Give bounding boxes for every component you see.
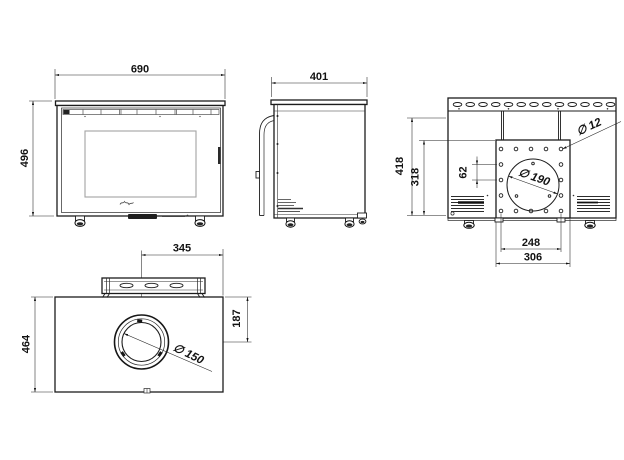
plan-bottom-clip — [144, 389, 150, 394]
dimension-side-depth: 401 — [272, 71, 368, 97]
dimension-front-width: 690 — [55, 64, 225, 100]
plan-body — [55, 278, 223, 393]
plan-view: 345 464 187 — [21, 243, 252, 394]
front-view: 690 496 — [19, 64, 225, 227]
side-foot-middle — [345, 218, 354, 227]
plate-tab-left — [495, 218, 503, 222]
side-view: 401 — [256, 71, 367, 227]
side-foot-front — [286, 218, 295, 227]
flue-offset-y-label: 187 — [231, 309, 243, 327]
side-depth-label: 401 — [310, 71, 328, 83]
rear-plate-height-label: 318 — [410, 168, 422, 186]
dimension-hole-span: 248 — [501, 214, 561, 252]
side-top-plate — [271, 100, 367, 105]
rear-body — [448, 98, 616, 228]
front-ash-lip — [128, 214, 157, 219]
vent-latch-block — [64, 110, 70, 114]
dimension-plan-depth: 464 — [21, 297, 54, 392]
side-body — [256, 100, 367, 227]
fireplace-dimension-drawing: 690 496 — [0, 0, 624, 460]
dimension-rear-overall-height: 418 — [394, 118, 446, 216]
front-foot-right — [195, 216, 205, 226]
hole-pitch-label: 62 — [458, 166, 470, 178]
rear-foot-left — [464, 221, 474, 229]
front-top-plate — [56, 101, 226, 106]
front-foot-left — [75, 216, 85, 226]
plan-front-grille — [102, 278, 205, 298]
hole-span-label: 248 — [522, 237, 540, 249]
dimension-flue-offset-y: 187 — [225, 297, 252, 342]
collar-tab-top — [137, 319, 142, 322]
dimension-front-height: 496 — [19, 101, 54, 216]
plate-width-label: 306 — [524, 252, 542, 264]
front-height-label: 496 — [19, 149, 31, 167]
front-body — [56, 101, 226, 226]
front-body-outline — [57, 106, 223, 217]
rear-height-label: 418 — [394, 157, 406, 175]
front-width-label: 690 — [131, 64, 149, 76]
technical-drawing-canvas: 690 496 — [0, 0, 624, 460]
rear-foot-right — [585, 221, 595, 229]
side-body-outline — [274, 105, 365, 219]
flue-offset-x-label: 345 — [173, 243, 191, 255]
side-door-handle — [256, 116, 274, 216]
door-hinge-bar — [218, 147, 221, 164]
plan-depth-label: 464 — [21, 334, 33, 353]
plan-flue-collar — [115, 315, 169, 369]
rear-view: 418 318 62 ∅ 12 ∅ 190 248 — [394, 98, 621, 267]
